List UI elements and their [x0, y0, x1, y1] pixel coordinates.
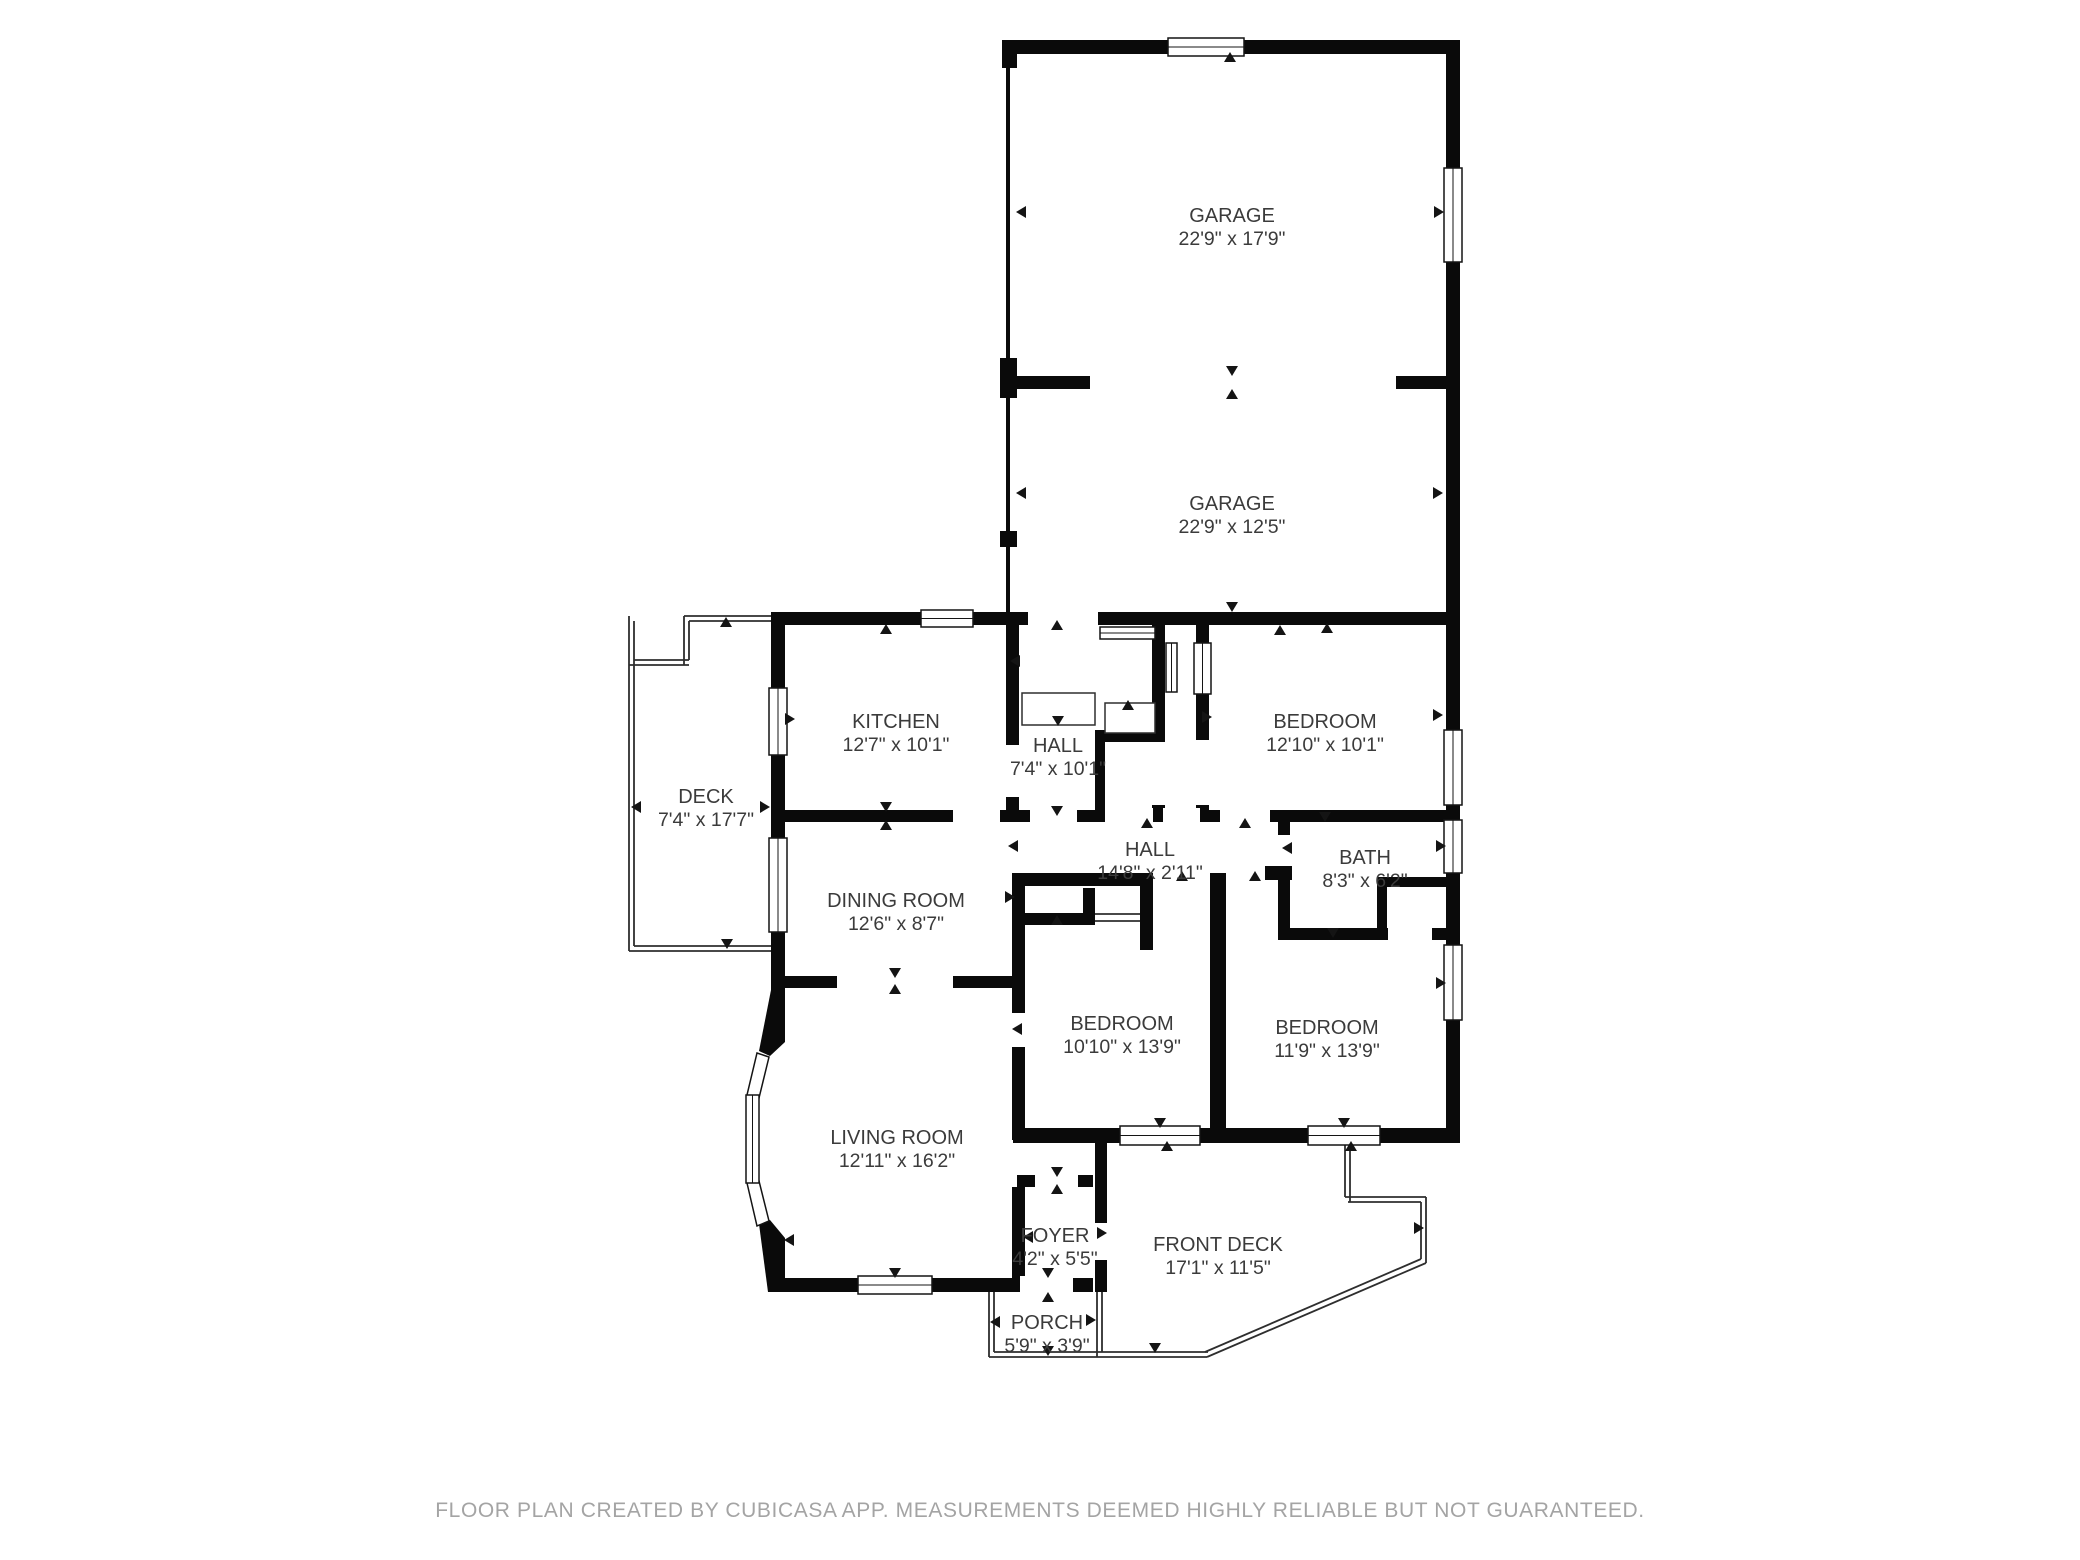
door-opening [1028, 610, 1098, 627]
direction-arrow [1008, 840, 1018, 852]
direction-arrow [1414, 1222, 1424, 1234]
wall-segment [1278, 810, 1290, 940]
stairs-layer [1022, 693, 1155, 733]
direction-arrow [760, 801, 770, 813]
direction-arrow [631, 801, 641, 813]
room-label-living-room: LIVING ROOM [830, 1127, 963, 1149]
room-dims-bedroom-left: 10'10" x 13'9" [1063, 1036, 1181, 1058]
direction-arrow [1226, 602, 1238, 612]
wall-segment [1013, 1128, 1460, 1143]
wall-segment [771, 612, 1460, 625]
floor-plan-page: GARAGE 22'9" x 17'9" GARAGE 22'9" x 12'5… [0, 0, 2080, 1560]
room-label-garage-lower: GARAGE [1189, 493, 1275, 515]
windows-layer [746, 38, 1462, 1294]
room-label-dining-room: DINING ROOM [827, 890, 965, 912]
direction-arrow [720, 617, 732, 627]
room-dims-living-room: 12'11" x 16'2" [839, 1150, 955, 1172]
room-dims-dining-room: 12'6" x 8'7" [848, 913, 944, 935]
bay-window [747, 1181, 769, 1226]
room-label-bedroom-right: BEDROOM [1275, 1017, 1378, 1039]
room-dims-bedroom-upper: 12'10" x 10'1" [1266, 734, 1384, 756]
bay-wall [759, 990, 785, 1056]
room-label-bath: BATH [1339, 847, 1391, 869]
room-label-front-deck: FRONT DECK [1153, 1234, 1283, 1256]
direction-arrow [990, 1316, 1000, 1328]
walls-layer [768, 40, 1460, 1292]
direction-arrow [721, 939, 733, 949]
room-dims-deck: 7'4" x 17'7" [658, 809, 754, 831]
bay-window [747, 1053, 769, 1098]
room-dims-hall-upper: 7'4" x 10'1" [1010, 758, 1106, 780]
direction-arrow [1016, 487, 1026, 499]
door-opening [1020, 1276, 1073, 1294]
room-label-garage-upper: GARAGE [1189, 205, 1275, 227]
floor-plan-canvas: GARAGE 22'9" x 17'9" GARAGE 22'9" x 12'5… [0, 0, 2080, 1560]
direction-arrow [880, 624, 892, 634]
room-label-hall-upper: HALL [1033, 735, 1083, 757]
wall-segment [1210, 873, 1226, 1143]
door-opening [1194, 740, 1211, 805]
direction-arrow [1274, 625, 1286, 635]
direction-arrow [785, 713, 795, 725]
direction-arrow [1433, 487, 1443, 499]
wall-segment [1000, 531, 1017, 547]
door-opening [1030, 808, 1077, 824]
room-dims-bath: 8'3" x 6'2" [1322, 870, 1407, 892]
direction-arrow [1086, 1314, 1096, 1326]
room-label-bedroom-left: BEDROOM [1070, 1013, 1173, 1035]
door-opening [1090, 374, 1396, 391]
bay-wall [759, 1220, 785, 1292]
room-label-foyer: FOYER [1021, 1225, 1090, 1247]
room-dims-porch: 5'9" x 3'9" [1004, 1335, 1089, 1357]
door-opening [1163, 808, 1200, 824]
room-label-kitchen: KITCHEN [852, 711, 940, 733]
door-opening [1388, 926, 1432, 942]
room-dims-hall-corridor: 14'8" x 2'11" [1097, 862, 1203, 884]
room-label-deck: DECK [678, 786, 734, 808]
room-label-hall-corridor: HALL [1125, 839, 1175, 861]
door-opening [953, 808, 1000, 824]
wall-segment [1083, 888, 1095, 925]
room-dims-front-deck: 17'1" x 11'5" [1165, 1257, 1271, 1279]
room-label-porch: PORCH [1011, 1312, 1083, 1334]
deck-outline-layer [629, 377, 1426, 1357]
footer-disclaimer: FLOOR PLAN CREATED BY CUBICASA APP. MEAS… [435, 1499, 1645, 1522]
direction-arrow [1016, 206, 1026, 218]
direction-arrow [1433, 709, 1443, 721]
wall-segment [1018, 913, 1083, 925]
room-label-bedroom-upper: BEDROOM [1273, 711, 1376, 733]
room-dims-garage-upper: 22'9" x 17'9" [1179, 228, 1286, 250]
wall-segment [1006, 54, 1010, 612]
direction-arrow [1434, 206, 1444, 218]
wall-segment [1290, 928, 1460, 940]
room-dims-kitchen: 12'7" x 10'1" [843, 734, 950, 756]
wall-segment [771, 612, 785, 1000]
direction-arrow [784, 1234, 794, 1246]
room-dims-bedroom-right: 11'9" x 13'9" [1274, 1040, 1380, 1062]
room-dims-garage-lower: 22'9" x 12'5" [1179, 516, 1286, 538]
wall-segment [1140, 873, 1153, 950]
room-dims-foyer: 4'2" x 5'5" [1012, 1248, 1097, 1270]
wall-segment [1446, 40, 1460, 625]
